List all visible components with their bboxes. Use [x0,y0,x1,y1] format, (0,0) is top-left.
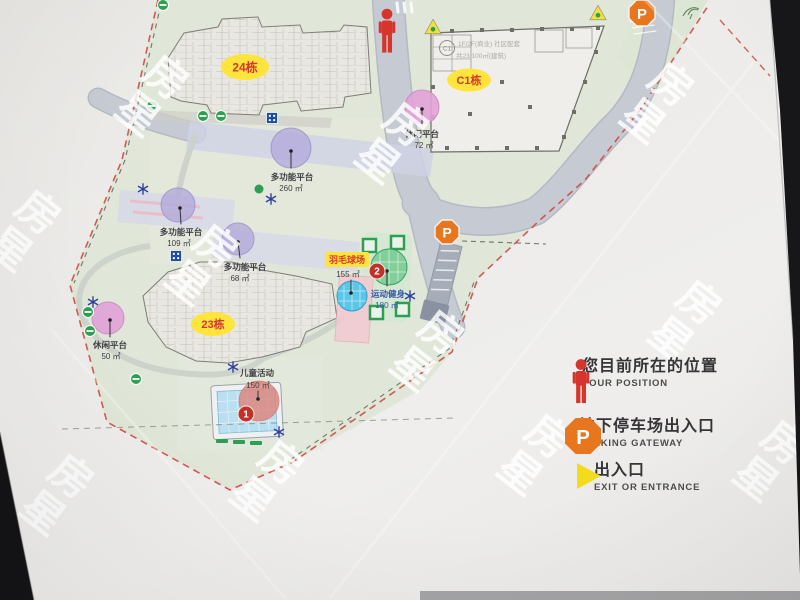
svg-text:多功能平台: 多功能平台 [160,227,203,237]
legend-your-position: 您目前所在的位置 YOUR POSITION [568,358,718,389]
site-map-drawing: P P 休闲平台 72 ㎡ 多功能平台 260 ㎡ 多功能平台 109 ㎡ 多功… [0,0,800,600]
parking-letter: P [637,6,647,23]
shrub-icon [255,185,264,194]
marker-2: 2 [374,267,380,278]
svg-text:休闲平台: 休闲平台 [92,340,128,350]
parking-gateway-icon: P [565,418,601,454]
building-24-tag: 24栋 [232,60,257,75]
svg-text:260 ㎡: 260 ㎡ [279,184,303,193]
legend-en-label: YOUR POSITION [582,378,718,389]
court-marker-icon [266,112,277,123]
court-marker-icon [170,250,181,261]
no-entry-icon [130,373,141,384]
exit-entrance-icon [576,462,602,492]
svg-text:运动健身: 运动健身 [371,289,406,299]
c1-badge: C1 [443,46,452,53]
site-map-sign-photo: P P 休闲平台 72 ㎡ 多功能平台 260 ㎡ 多功能平台 109 ㎡ 多功… [0,0,800,600]
parking-icon: P [435,220,459,244]
c1-info-line2: 共23,100㎡(建筑) [456,51,506,60]
marker-1: 1 [243,410,249,421]
no-entry-icon [157,0,168,11]
legend-zh-label: 您目前所在的位置 [582,358,718,376]
parking-letter: P [576,427,590,449]
svg-text:休闲平台: 休闲平台 [404,129,440,139]
svg-text:72 ㎡: 72 ㎡ [414,141,433,150]
svg-text:50 ㎡: 50 ㎡ [101,352,120,361]
svg-text:羽毛球场: 羽毛球场 [329,254,365,265]
building-23-tag: 23栋 [201,317,224,331]
legend-parking-gateway: P 地下停车场出入口 PARKING GATEWAY [565,418,715,449]
svg-text:68 ㎡: 68 ㎡ [230,274,249,283]
svg-text:儿童活动: 儿童活动 [239,368,275,378]
parking-letter: P [442,225,451,241]
svg-text:150 ㎡: 150 ㎡ [246,381,270,390]
legend-en-label: EXIT OR ENTRANCE [594,482,700,493]
building-c1-tag: C1栋 [456,73,481,87]
no-entry-icon [215,110,226,121]
no-entry-icon [197,110,208,121]
your-position-icon [568,358,594,404]
legend-exit-entrance: 出入口 EXIT OR ENTRANCE [576,462,700,493]
no-entry-icon [82,306,93,317]
parking-icon: P [629,0,655,26]
no-entry-icon [146,100,157,111]
svg-text:155 ㎡: 155 ㎡ [336,270,360,279]
svg-text:多功能平台: 多功能平台 [271,172,314,182]
svg-text:109 ㎡: 109 ㎡ [167,239,191,248]
c1-info-line1: 1F/2F(商业) 社区配套 [458,39,521,48]
svg-text:180 ㎡: 180 ㎡ [375,301,399,310]
svg-text:多功能平台: 多功能平台 [224,262,267,272]
no-entry-icon [84,325,95,336]
legend-zh-label: 出入口 [594,462,700,480]
